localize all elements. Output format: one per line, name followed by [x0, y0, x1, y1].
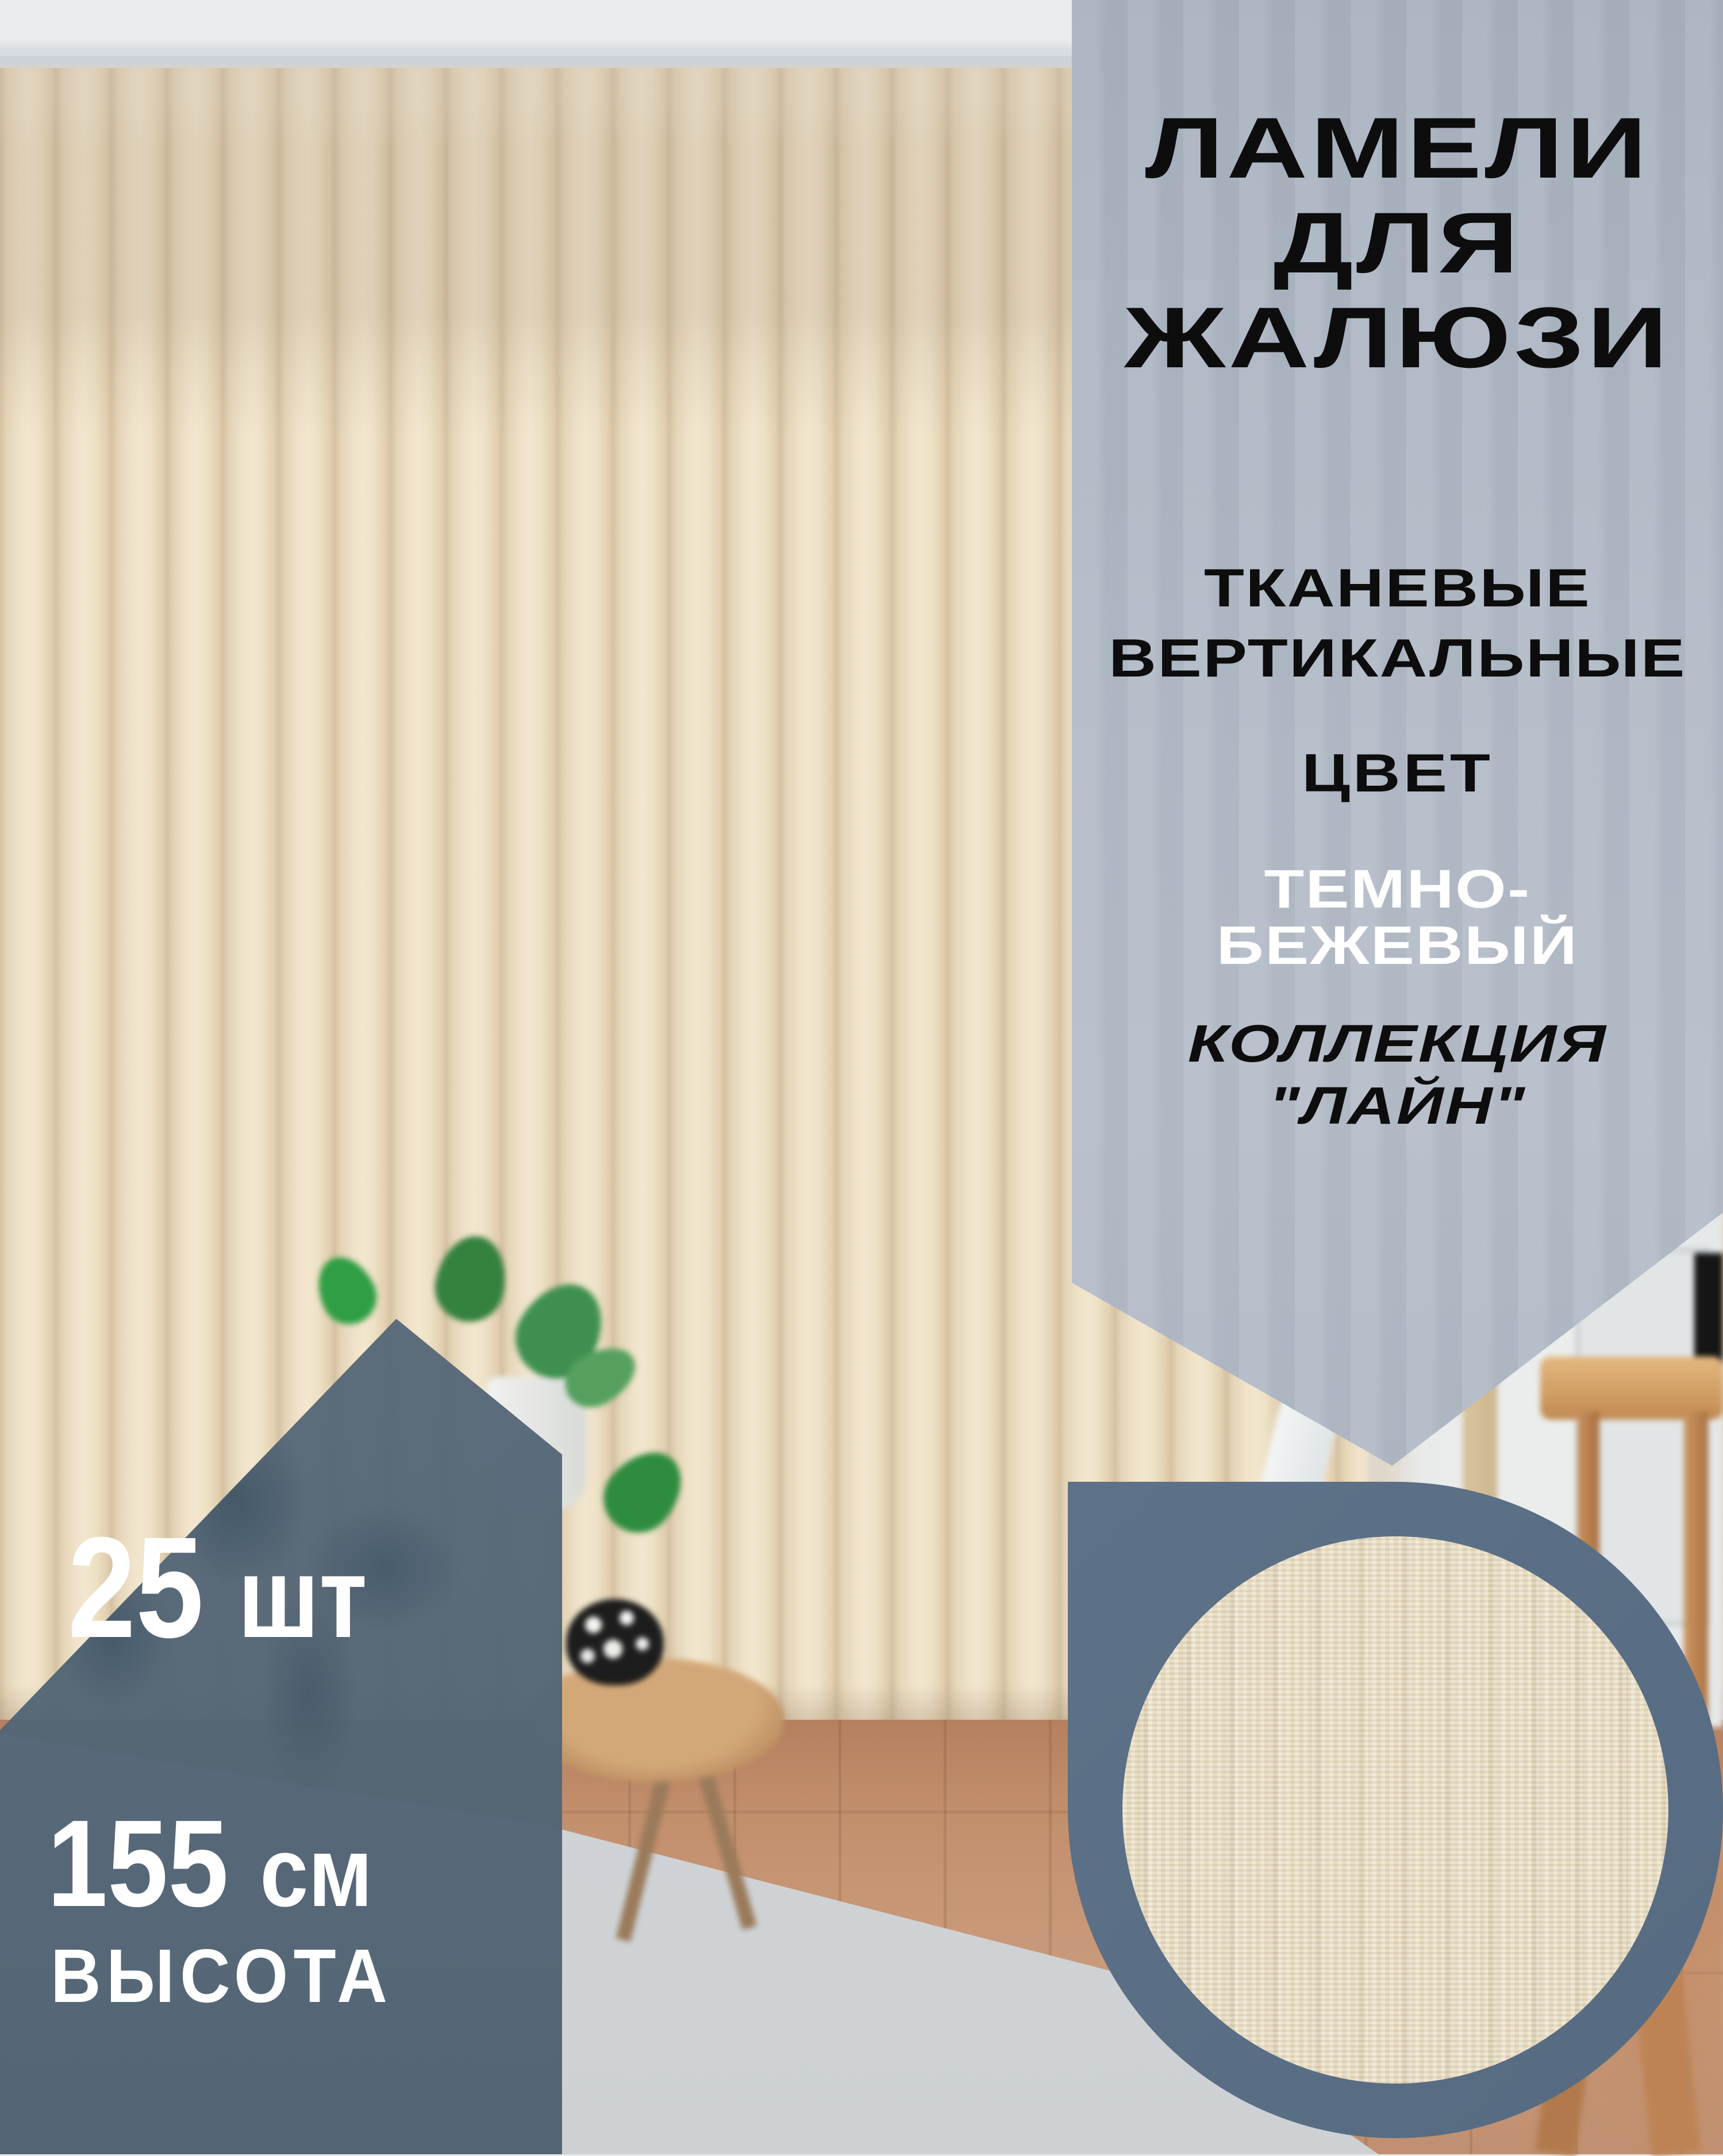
- subtitle-line: ТКАНЕВЫЕ: [1000, 553, 1723, 623]
- subtitle-line: ВЕРТИКАЛЬНЫЕ: [1000, 623, 1723, 693]
- title-line: ЛАМЕЛИ: [974, 101, 1723, 195]
- collection-line: КОЛЛЕКЦИЯ: [994, 1013, 1723, 1075]
- height-label: ВЫСОТА: [51, 1932, 393, 2019]
- side-table-leg: [695, 1760, 757, 1930]
- color-value-line: ТЕМНО-: [1007, 861, 1723, 917]
- quantity-unit: шт: [238, 1534, 367, 1662]
- decor-bowl: [566, 1599, 664, 1685]
- height-value: 155: [47, 1794, 229, 1932]
- quantity-text: 25шт: [68, 1505, 367, 1670]
- collection-name: КОЛЛЕКЦИЯ "ЛАЙН": [994, 1013, 1723, 1137]
- title-line: ЖАЛЮЗИ: [974, 290, 1723, 385]
- info-panel: ЛАМЕЛИ ДЛЯ ЖАЛЮЗИ ТКАНЕВЫЕ ВЕРТИКАЛЬНЫЕ …: [1072, 0, 1723, 1494]
- side-table: [526, 1658, 784, 1782]
- side-table-leg: [616, 1760, 675, 1942]
- color-value: ТЕМНО- БЕЖЕВЫЙ: [1007, 861, 1723, 974]
- product-title: ЛАМЕЛИ ДЛЯ ЖАЛЮЗИ: [974, 101, 1723, 385]
- plant-leaf: [590, 1436, 698, 1547]
- color-label: ЦВЕТ: [1000, 744, 1723, 802]
- plant-leaf: [307, 1248, 386, 1333]
- fabric-swatch-texture: [1122, 1536, 1668, 2084]
- quantity-value: 25: [68, 1507, 203, 1667]
- height-text: 155см: [47, 1792, 372, 1935]
- product-subtitle: ТКАНЕВЫЕ ВЕРТИКАЛЬНЫЕ: [1000, 553, 1723, 693]
- plant-leaf: [429, 1229, 514, 1328]
- height-unit: см: [260, 1817, 372, 1927]
- fabric-swatch-ring: [1068, 1482, 1723, 2138]
- color-value-line: БЕЖЕВЫЙ: [1007, 917, 1723, 974]
- collection-line: "ЛАЙН": [994, 1075, 1723, 1137]
- title-line: ДЛЯ: [974, 195, 1723, 290]
